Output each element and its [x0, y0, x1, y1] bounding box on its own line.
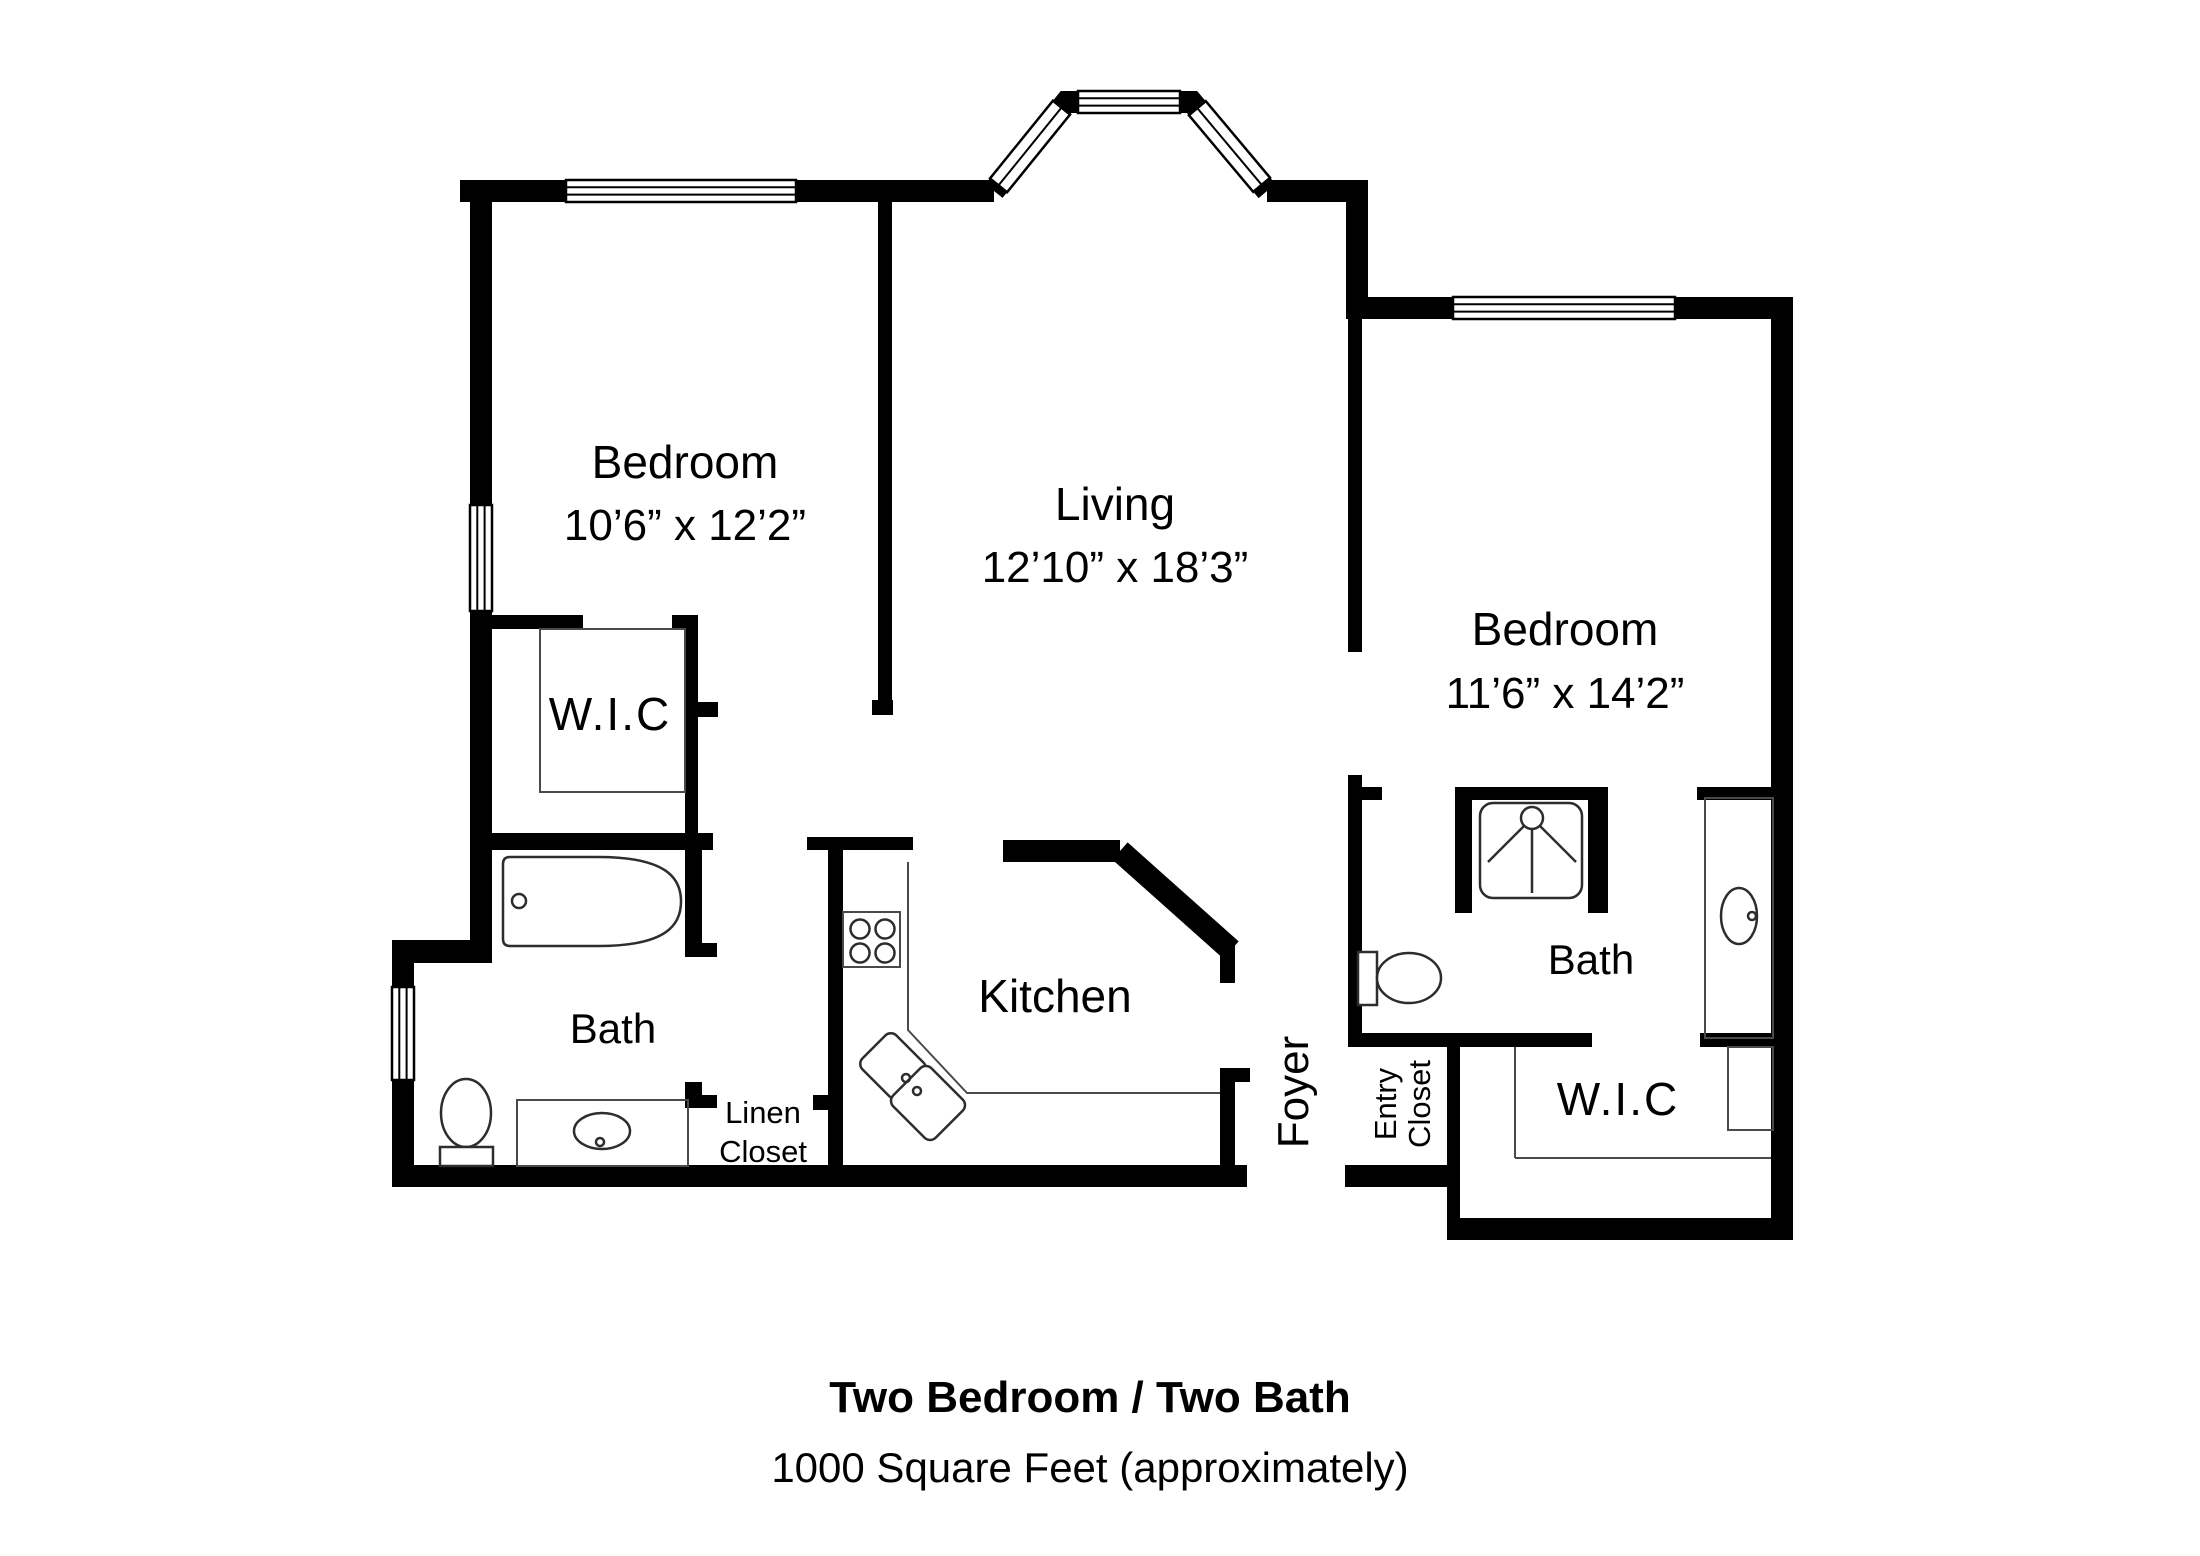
window-bedroom-left-side [470, 505, 492, 611]
bedroom-right-label: Bedroom [1472, 603, 1659, 655]
shower [1480, 803, 1582, 898]
vanity-sink-right [1705, 798, 1773, 1038]
entry-closet-label-line1: Entry [1368, 1067, 1403, 1140]
bedroom-right-dims: 11’6” x 14’2” [1446, 669, 1685, 718]
caption: Two Bedroom / Two Bath 1000 Square Feet … [771, 1373, 1408, 1491]
window-bedroom-right-top [1453, 297, 1675, 319]
foyer-label: Foyer [1269, 1036, 1318, 1148]
vanity-sink-left [517, 1100, 688, 1166]
entry-closet-label-line2: Closet [1402, 1060, 1437, 1148]
kitchen-double-sink [857, 1030, 968, 1143]
living-dims: 12’10” x 18’3” [982, 543, 1249, 592]
window-bath-left-side [392, 987, 414, 1080]
plan-title: Two Bedroom / Two Bath [829, 1373, 1350, 1422]
linen-closet-label-line1: Linen [725, 1095, 801, 1130]
kitchen-label: Kitchen [978, 970, 1131, 1022]
toilet-right [1358, 952, 1441, 1005]
window-bay-right [1189, 101, 1270, 192]
bathtub [503, 857, 681, 946]
wic-right-label: W.I.C [1557, 1073, 1679, 1125]
floorplan-drawing: Bedroom 10’6” x 12’2” Living 12’10” x 18… [0, 0, 2200, 1556]
window-bay-left [990, 101, 1070, 193]
bath-right-label: Bath [1548, 936, 1634, 983]
wic-left-label: W.I.C [549, 688, 671, 740]
window-bedroom-left-top [566, 180, 796, 202]
bedroom-left-label: Bedroom [592, 436, 779, 488]
bath-left-label: Bath [570, 1005, 656, 1052]
stove [843, 912, 900, 967]
window-bay-top [1078, 91, 1180, 113]
linen-closet-label-line2: Closet [719, 1134, 807, 1169]
toilet-left [440, 1079, 493, 1166]
living-label: Living [1055, 478, 1175, 530]
bedroom-left-dims: 10’6” x 12’2” [564, 501, 806, 550]
floorplan-page: Bedroom 10’6” x 12’2” Living 12’10” x 18… [0, 0, 2200, 1556]
plan-subtitle: 1000 Square Feet (approximately) [771, 1444, 1408, 1491]
